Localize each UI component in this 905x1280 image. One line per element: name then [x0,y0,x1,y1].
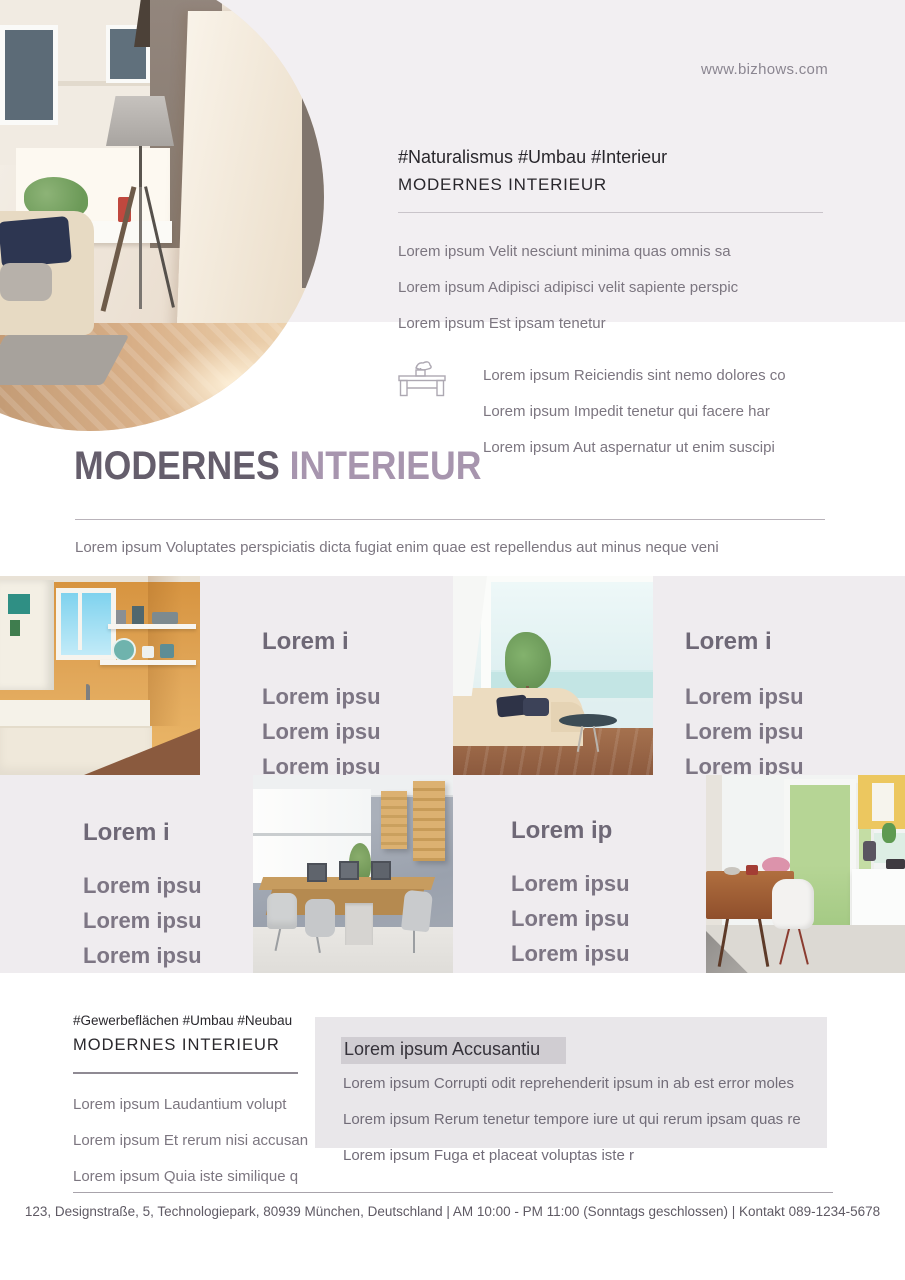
block-item: Lorem ipsu [685,719,804,745]
kitchen-island [852,869,905,927]
console-table-icon [396,355,448,399]
plant [505,632,551,690]
gallery-text-block-1: Lorem i Lorem ipsu Lorem ipsu Lorem ipsu [262,628,349,656]
header-hashtags: #Naturalismus #Umbau #Interieur [398,147,667,168]
photo-kitchen [0,576,200,775]
plant [882,823,896,843]
header-title: MODERNES INTERIEUR [398,175,607,195]
block-item: Lorem ipsu [511,871,630,897]
gallery-row-1: Lorem i Lorem ipsu Lorem ipsu Lorem ipsu… [0,576,905,775]
brochure-page: www.bizhows.com #Naturalismus #Umbau #In… [0,0,905,1280]
floor-lamp-shade [106,96,174,146]
feature-line: Lorem ipsum Aut aspernatur ut enim susci… [483,439,775,456]
bottom-list-item: Lorem ipsum Quia iste similique q [73,1168,298,1185]
lamp-tripod-leg [139,187,142,309]
block-item: Lorem ipsu [262,719,381,745]
block-item: Lorem ipsu [511,941,630,967]
footer-contact-info: 123, Designstraße, 5, Technologiepark, 8… [0,1204,905,1219]
block-item: Lorem ipsu [83,873,202,899]
bottom-hashtags: #Gewerbeflächen #Umbau #Neubau [73,1013,292,1028]
block-heading: Lorem i [83,819,170,847]
panel-line: Lorem ipsum Fuga et placeat voluptas ist… [343,1147,634,1164]
block-heading: Lorem i [685,628,772,656]
divider [73,1072,298,1074]
divider [75,519,825,520]
panel-line: Lorem ipsum Corrupti odit reprehenderit … [343,1075,794,1092]
website-url: www.bizhows.com [701,61,828,78]
info-panel: Lorem ipsum Accusantiu Lorem ipsum Corru… [315,1017,827,1148]
page-title: MODERNES INTERIEUR [74,444,481,489]
footer-divider [73,1192,833,1193]
block-item: Lorem ipsu [83,908,202,934]
block-item: Lorem ipsu [511,906,630,932]
intro-line: Lorem ipsum Est ipsam tenetur [398,315,606,332]
office-chair [305,899,335,937]
gallery-text-block-3: Lorem i Lorem ipsu Lorem ipsu Lorem ipsu [83,819,170,847]
panel-heading-highlighted: Lorem ipsum Accusantiu [341,1037,566,1064]
gallery-row-2: Lorem i Lorem ipsu Lorem ipsu Lorem ipsu [0,775,905,973]
monitor [339,861,359,880]
bottom-title: MODERNES INTERIEUR [73,1036,280,1055]
page-title-light: INTERIEUR [290,444,482,488]
facade-window [0,25,58,125]
office-chair [267,893,297,929]
block-item: Lorem ipsu [262,684,381,710]
pillow [0,216,72,268]
monitor [307,863,327,882]
coffee-table [559,714,617,727]
wood-panel [381,791,407,849]
page-subtitle: Lorem ipsum Voluptates perspiciatis dict… [75,539,719,556]
hero-photo-living-room [0,0,324,431]
office-chair [401,890,433,933]
wood-panel [413,781,445,861]
page-title-dark: MODERNES [74,444,280,488]
feature-line: Lorem ipsum Reiciendis sint nemo dolores… [483,367,786,384]
bottom-list-item: Lorem ipsum Et rerum nisi accusan [73,1132,308,1149]
photo-dining-kitchen [706,775,905,973]
panel-line: Lorem ipsum Rerum tenetur tempore iure u… [343,1111,801,1128]
monitor [371,861,391,880]
photo-seaside-living-room [453,576,653,775]
feature-line: Lorem ipsum Impedit tenetur qui facere h… [483,403,770,420]
kitchen-window [56,588,116,660]
intro-line: Lorem ipsum Adipisci adipisci velit sapi… [398,279,738,296]
chair [772,879,814,929]
bottom-list-item: Lorem ipsum Laudantium volupt [73,1096,286,1113]
block-heading: Lorem ip [511,817,612,845]
block-item: Lorem ipsu [83,943,202,969]
block-heading: Lorem i [262,628,349,656]
block-item: Lorem ipsu [685,684,804,710]
door-panel [176,11,320,351]
gallery-text-block-4: Lorem ip Lorem ipsu Lorem ipsu Lorem ips… [511,817,612,845]
divider [398,212,823,213]
intro-line: Lorem ipsum Velit nesciunt minima quas o… [398,243,731,260]
photo-office [253,775,453,973]
gallery-text-block-2: Lorem i Lorem ipsu Lorem ipsu Lorem ipsu [685,628,772,656]
